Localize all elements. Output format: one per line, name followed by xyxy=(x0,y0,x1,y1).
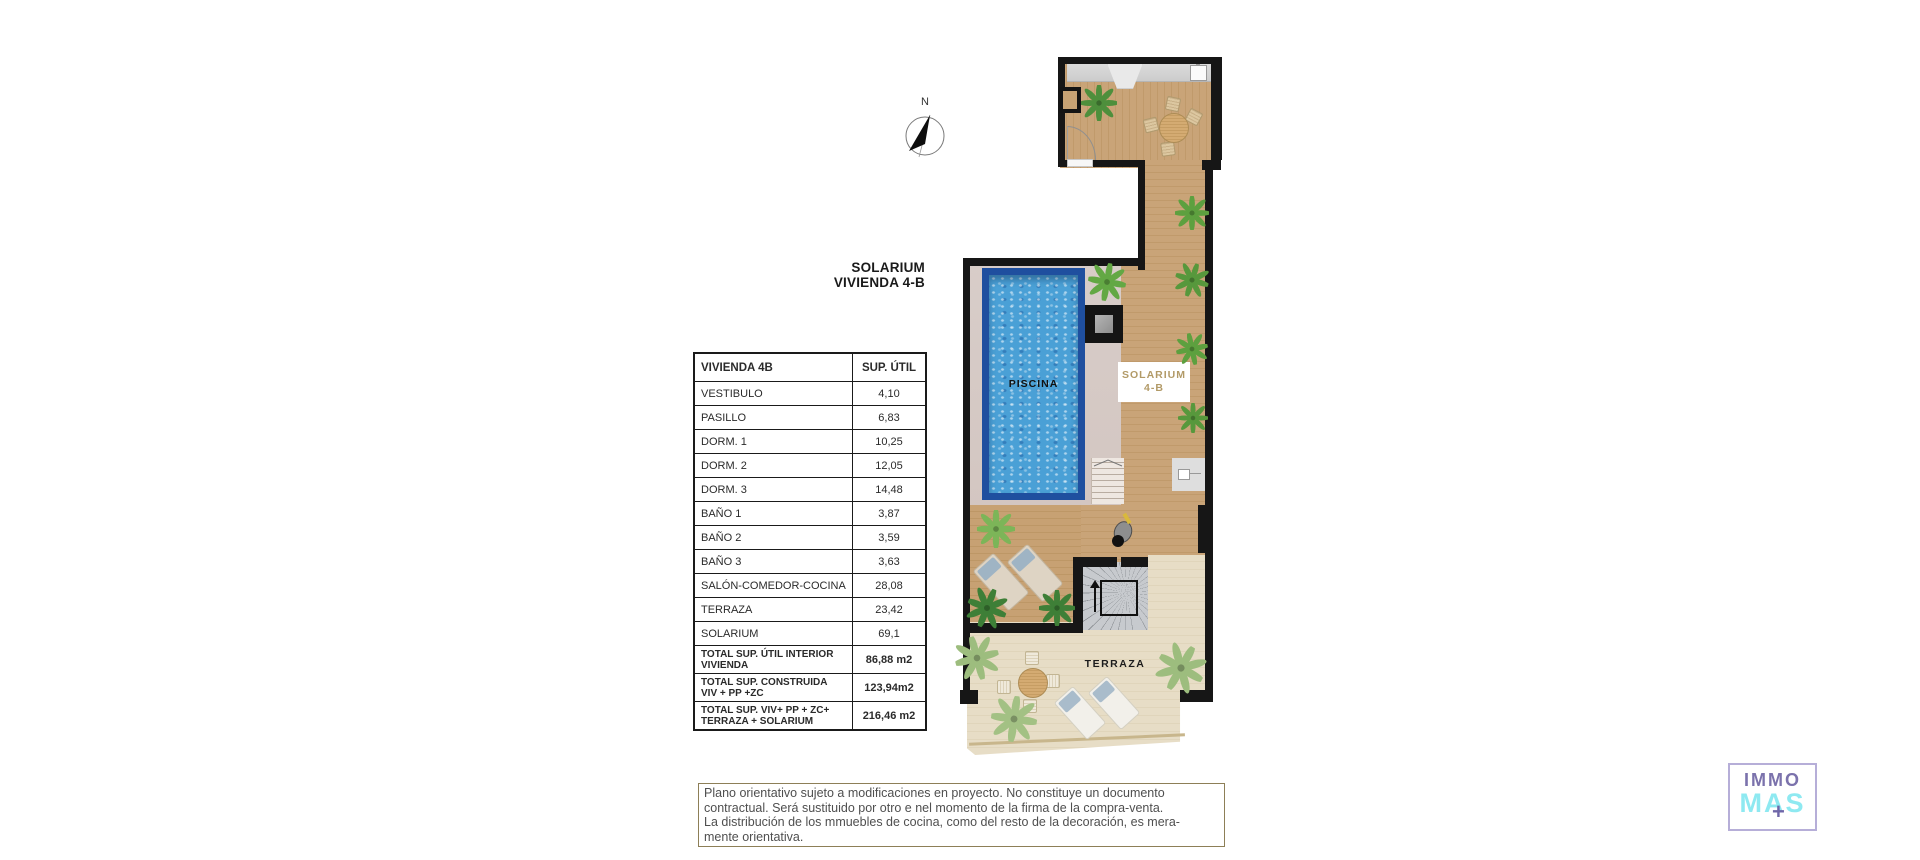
sink-icon xyxy=(1190,65,1207,81)
palm-icon xyxy=(1085,260,1129,304)
table-row: SALÓN-COMEDOR-COCINA28,08 xyxy=(695,573,925,597)
table-header-name: VIVIENDA 4B xyxy=(695,354,853,381)
compass-icon xyxy=(895,108,955,160)
wall xyxy=(963,258,970,633)
wall xyxy=(1058,160,1067,167)
stairwell-arrow-icon xyxy=(1094,584,1096,612)
terraza-label: TERRAZA xyxy=(1080,658,1150,670)
table-row: DORM. 110,25 xyxy=(695,429,925,453)
terrace-table xyxy=(1018,668,1048,698)
terraza-side-floor xyxy=(1148,555,1210,625)
disclaimer-line: La distribución de los mmuebles de cocin… xyxy=(704,815,1219,830)
table-row: BAÑO 13,87 xyxy=(695,501,925,525)
palm-icon xyxy=(1081,85,1117,121)
door-threshold xyxy=(1067,159,1093,167)
table-total-row: TOTAL SUP. ÚTIL INTERIORVIVIENDA 86,88 m… xyxy=(695,645,925,673)
palm-icon xyxy=(988,693,1040,745)
roof-table xyxy=(1159,113,1189,143)
plan-title: SOLARIUM VIVIENDA 4-B xyxy=(760,260,925,290)
plan-title-line1: SOLARIUM xyxy=(760,260,925,275)
wall xyxy=(1058,57,1222,64)
table-row: VESTIBULO4,10 xyxy=(695,381,925,405)
wall xyxy=(1138,160,1145,270)
palm-icon xyxy=(1173,330,1211,368)
solarium-label-line2: 4-B xyxy=(1144,382,1164,395)
wall xyxy=(1121,557,1148,567)
shower-mat xyxy=(1172,458,1205,491)
logo-plus-icon: + xyxy=(1772,799,1785,825)
wall xyxy=(960,690,978,704)
disclaimer-line: mente orientativa. xyxy=(704,830,1219,845)
roof-chair xyxy=(1165,96,1182,113)
table-row: TERRAZA23,42 xyxy=(695,597,925,621)
palm-icon xyxy=(1039,590,1075,626)
disclaimer-line: Plano orientativo sujeto a modificacione… xyxy=(704,786,1219,801)
table-total-row: TOTAL SUP. VIV+ PP + ZC+TERRAZA + SOLARI… xyxy=(695,701,925,729)
tree-icon xyxy=(977,510,1015,548)
wall xyxy=(1198,505,1211,553)
immomas-logo: IMMO MAS + xyxy=(1728,763,1817,831)
table-row: PASILLO6,83 xyxy=(695,405,925,429)
table-row: BAÑO 23,59 xyxy=(695,525,925,549)
floor-plan: PISCINA SOLARIUM 4-B xyxy=(955,10,1230,795)
storage-niche xyxy=(1059,87,1081,113)
terrace-chair xyxy=(997,680,1011,694)
wall xyxy=(1211,57,1222,160)
table-row: DORM. 212,05 xyxy=(695,453,925,477)
stairwell-arrowhead-icon xyxy=(1090,580,1100,588)
pool-stairs xyxy=(1091,458,1124,504)
disclaimer-line: contractual. Será sustituido por otro e … xyxy=(704,801,1219,816)
pool-equipment-inner xyxy=(1095,315,1113,333)
stairwell-core xyxy=(1100,580,1138,616)
wall xyxy=(1202,160,1221,170)
floor-plan-sheet: N SOLARIUM VIVIENDA 4-B VIVIENDA 4B SUP.… xyxy=(0,0,1920,860)
compass-north-label: N xyxy=(895,96,955,108)
table-total-row: TOTAL SUP. CONSTRUIDAVIV + PP +ZC 123,94… xyxy=(695,673,925,701)
terrace-chair xyxy=(1025,651,1039,665)
solarium-label-box: SOLARIUM 4-B xyxy=(1118,362,1190,402)
terrace-chair xyxy=(1046,674,1060,688)
plan-title-line2: VIVIENDA 4-B xyxy=(760,275,925,290)
pool-label: PISCINA xyxy=(982,378,1085,390)
disclaimer-box: Plano orientativo sujeto a modificacione… xyxy=(698,783,1225,847)
table-header-sup: SUP. ÚTIL xyxy=(853,354,925,381)
table-row: DORM. 314,48 xyxy=(695,477,925,501)
person-figure xyxy=(1110,513,1136,549)
area-table: VIVIENDA 4B SUP. ÚTIL VESTIBULO4,10 PASI… xyxy=(693,352,927,731)
roof-chair xyxy=(1160,141,1176,157)
table-header-row: VIVIENDA 4B SUP. ÚTIL xyxy=(695,354,925,381)
table-row: BAÑO 33,63 xyxy=(695,549,925,573)
palm-icon xyxy=(1175,196,1209,230)
wall xyxy=(1073,557,1117,567)
compass: N xyxy=(895,96,955,166)
table-row: SOLARIUM69,1 xyxy=(695,621,925,645)
solarium-label-line1: SOLARIUM xyxy=(1122,369,1186,382)
palm-icon xyxy=(1178,403,1208,433)
